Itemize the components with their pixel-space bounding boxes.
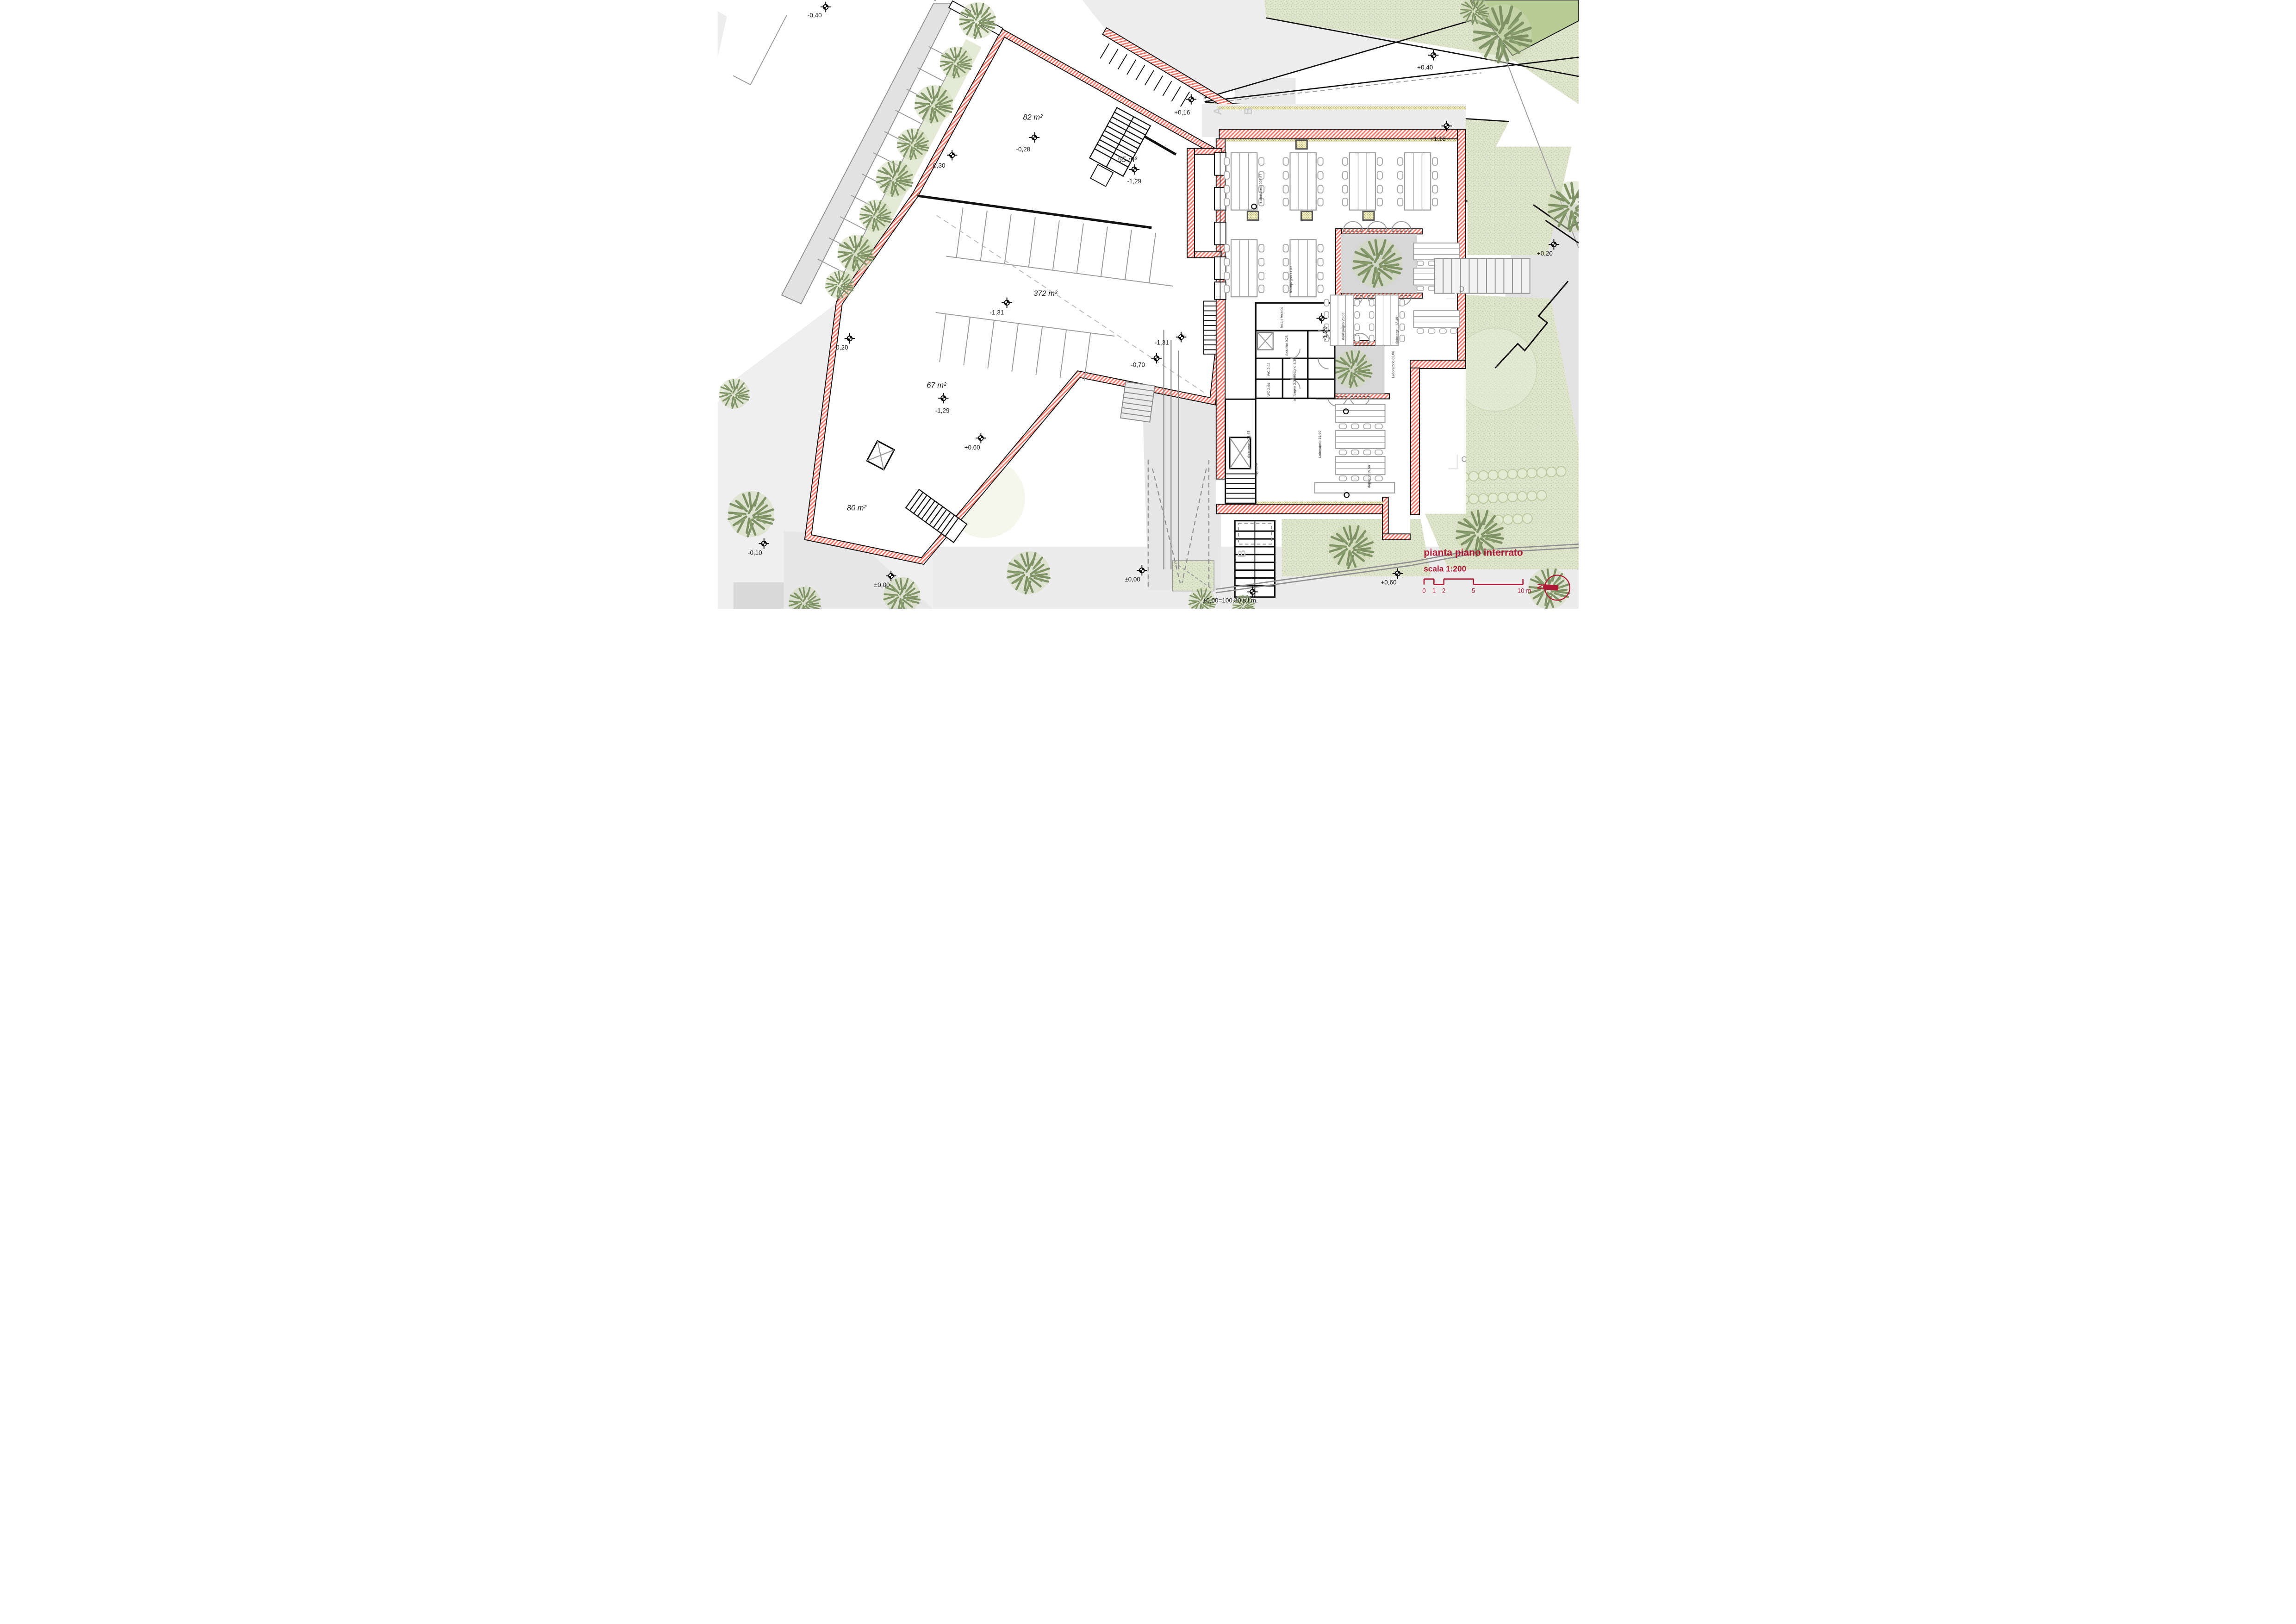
level-label: ±0,00	[874, 581, 890, 588]
room-label: disimpegno 11,62	[1288, 266, 1293, 293]
room-label: deposito 9,28	[1284, 335, 1288, 356]
level-label: -0,10	[747, 549, 762, 556]
room-label: Laboratorio 297,87	[1258, 174, 1263, 203]
room-label: antibagno 3,38	[1292, 358, 1296, 381]
north-label: N	[1536, 583, 1544, 589]
floor-plan-page: 82 m² 55 m² 372 m² 67 m² 80 m² -0,40 +0,…	[718, 0, 1579, 609]
section-a: A	[1212, 107, 1224, 115]
level-label: +0,20	[1537, 250, 1552, 257]
level-label: ±0,00=100,80 s.l.m.	[1202, 597, 1257, 604]
room-label: disimpegno 21,88	[1246, 431, 1251, 458]
level-label: -0,20	[834, 344, 848, 351]
drawing-title: pianta piano interrato	[1424, 548, 1523, 558]
level-label: -1,29	[1321, 326, 1328, 341]
level-label: +0,16	[1174, 109, 1190, 116]
level-label: -0,28	[1016, 146, 1030, 153]
section-b2: B	[1235, 550, 1248, 557]
room-label: deposito 19,56	[1367, 465, 1371, 488]
scale-1: 1	[1432, 587, 1435, 594]
room-label: disimpegno 12,46	[1394, 317, 1399, 344]
level-label: -1,31	[989, 309, 1004, 316]
room-label: disimpegno 23,88	[1341, 312, 1345, 340]
area-82: 82 m²	[1023, 113, 1043, 122]
room-label: locale tecnico	[1279, 307, 1283, 328]
level-label: ±0,00	[1125, 576, 1140, 583]
room-label: Laboratorio 86,06	[1391, 351, 1395, 378]
room-label: rip. 1,98	[1254, 463, 1258, 476]
scale-0: 0	[1422, 587, 1426, 594]
level-label: +1,16	[1430, 135, 1445, 142]
scale-2: 2	[1442, 587, 1445, 594]
scale-10m: 10 m	[1517, 587, 1531, 594]
level-label: -0,70	[1131, 362, 1145, 369]
level-label: -0,40	[807, 12, 821, 19]
room-label: antibagno 3,34	[1292, 378, 1296, 401]
area-67: 67 m²	[927, 381, 946, 390]
level-label: -1,29	[935, 407, 949, 414]
level-label: +0,60	[1381, 579, 1396, 586]
room-label: WC 2,44	[1266, 383, 1270, 397]
level-label: -0,30	[931, 162, 945, 169]
section-c: C	[1461, 455, 1467, 463]
area-80: 80 m²	[846, 504, 866, 512]
area-372: 372 m²	[1033, 289, 1058, 298]
area-55: 55 m²	[1117, 156, 1137, 164]
room-label: WC 2,44	[1266, 362, 1270, 376]
scale-5: 5	[1472, 587, 1475, 594]
room-label: Laboratorio 31,60	[1317, 431, 1321, 458]
section-d: D	[1459, 285, 1464, 294]
section-b: B	[1242, 107, 1255, 115]
level-label: +0,60	[964, 444, 980, 451]
drawing-scale: scala 1:200	[1424, 564, 1466, 573]
basement-floor-plan: 82 m² 55 m² 372 m² 67 m² 80 m² -0,40 +0,…	[718, 0, 1579, 609]
level-label: -1,29	[1127, 178, 1141, 185]
level-label: +0,40	[1417, 64, 1433, 71]
level-label: -1,31	[1155, 339, 1169, 346]
